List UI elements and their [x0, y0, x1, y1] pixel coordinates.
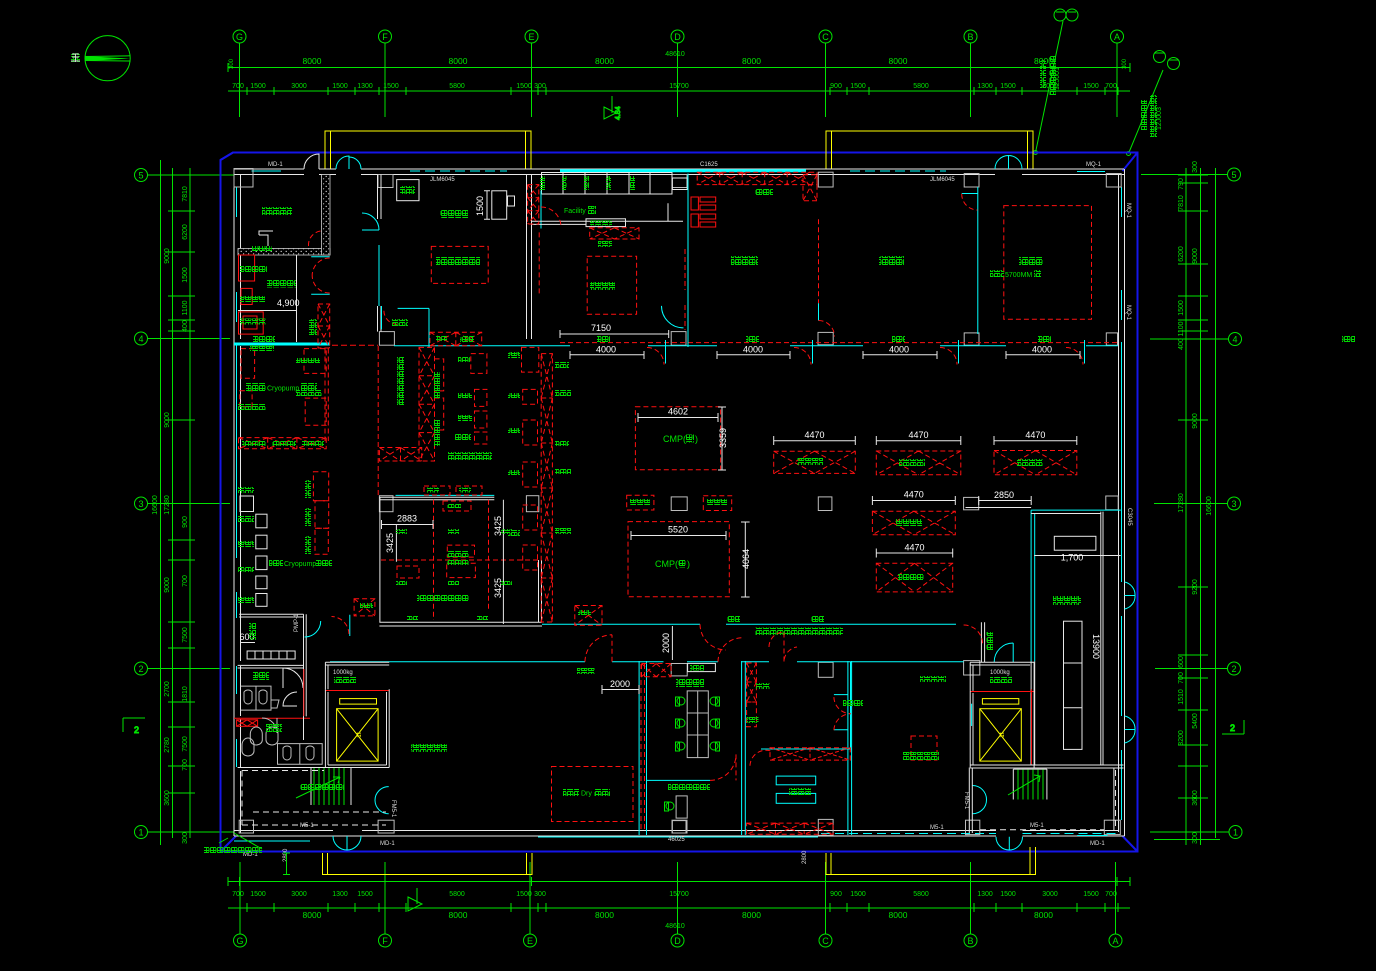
svg-text:300: 300: [1192, 161, 1199, 173]
svg-text:8000: 8000: [303, 56, 322, 66]
svg-text:4470: 4470: [1025, 430, 1045, 440]
svg-text:400: 400: [182, 320, 189, 332]
svg-text:1300: 1300: [357, 83, 373, 90]
svg-text:3600: 3600: [164, 790, 171, 806]
svg-text:CMP(: CMP(: [663, 434, 686, 444]
svg-text:3200: 3200: [1178, 730, 1185, 746]
svg-text:8000: 8000: [595, 910, 614, 920]
svg-text:1100: 1100: [182, 300, 189, 315]
svg-text:4470: 4470: [904, 542, 924, 552]
svg-text:9200: 9200: [1192, 579, 1199, 595]
svg-text:2700: 2700: [164, 681, 171, 697]
svg-text:1500: 1500: [383, 83, 399, 90]
svg-text:1,700: 1,700: [1061, 553, 1084, 563]
svg-text:700: 700: [232, 891, 244, 898]
svg-text:8000: 8000: [742, 56, 761, 66]
svg-text:5: 5: [138, 171, 143, 181]
svg-text:5520: 5520: [668, 525, 688, 535]
svg-text:E: E: [527, 936, 533, 946]
svg-text:1000kg: 1000kg: [333, 670, 353, 676]
svg-text:1500: 1500: [475, 196, 485, 216]
svg-text:46025: 46025: [668, 837, 685, 843]
svg-text:300: 300: [182, 832, 189, 844]
svg-text:8000: 8000: [1034, 910, 1053, 920]
svg-text:1: 1: [1233, 828, 1238, 838]
svg-text:16600: 16600: [1206, 496, 1213, 516]
svg-text:CMP(: CMP(: [655, 559, 678, 569]
svg-text:1500: 1500: [516, 83, 532, 90]
svg-text:1500: 1500: [850, 83, 866, 90]
svg-text:7500: 7500: [182, 736, 189, 752]
svg-text:4064: 4064: [741, 549, 751, 569]
svg-text:4000: 4000: [596, 345, 616, 355]
svg-text:48610: 48610: [665, 51, 685, 58]
svg-text:): ): [687, 559, 690, 569]
svg-text:E: E: [528, 32, 534, 42]
svg-text:MQ-1: MQ-1: [1086, 162, 1102, 168]
svg-text:PMP-1: PMP-1: [294, 613, 300, 632]
svg-text:Facility: Facility: [564, 208, 586, 215]
svg-text:300: 300: [1192, 832, 1199, 844]
svg-text:MQ-1: MQ-1: [1125, 305, 1131, 321]
svg-text:1500: 1500: [1083, 83, 1099, 90]
svg-text:1000kg: 1000kg: [990, 670, 1010, 676]
svg-text:1300: 1300: [977, 891, 993, 898]
svg-text:900: 900: [182, 516, 189, 528]
svg-text:1300: 1300: [977, 83, 993, 90]
svg-text:3359: 3359: [718, 428, 728, 448]
svg-text:8000: 8000: [889, 910, 908, 920]
svg-text:4000: 4000: [743, 345, 763, 355]
svg-text:C: C: [822, 32, 829, 42]
svg-text:3000: 3000: [1042, 891, 1058, 898]
svg-text:9000: 9000: [1192, 413, 1199, 429]
svg-text:13900: 13900: [1091, 634, 1101, 659]
svg-text:2: 2: [1230, 723, 1235, 733]
svg-text:1100: 1100: [1178, 321, 1185, 336]
svg-text:2: 2: [138, 664, 143, 674]
svg-text:9000: 9000: [164, 412, 171, 428]
svg-text:300: 300: [534, 891, 546, 898]
svg-text:8000: 8000: [303, 910, 322, 920]
svg-text:700: 700: [182, 759, 189, 771]
svg-text:9000: 9000: [164, 577, 171, 593]
svg-text:700: 700: [1105, 891, 1117, 898]
svg-text:4602: 4602: [668, 407, 688, 417]
svg-text:JLM6045: JLM6045: [430, 177, 455, 183]
svg-text:7150: 7150: [591, 323, 611, 333]
svg-text:2883: 2883: [397, 514, 417, 524]
svg-text:6200: 6200: [182, 224, 189, 240]
svg-text:1500: 1500: [332, 83, 348, 90]
svg-text:700: 700: [1178, 672, 1185, 684]
svg-text:M5-1: M5-1: [930, 825, 944, 831]
svg-text:4470: 4470: [804, 430, 824, 440]
svg-text:15700: 15700: [669, 891, 689, 898]
svg-text:700: 700: [1105, 83, 1117, 90]
svg-text:Cryopump: Cryopump: [284, 561, 316, 568]
svg-text:G: G: [236, 936, 243, 946]
svg-text:3: 3: [1231, 499, 1236, 509]
svg-text:1t: 1t: [356, 732, 363, 738]
svg-text:6200: 6200: [1178, 246, 1185, 262]
svg-text:900: 900: [830, 83, 842, 90]
svg-text:9000: 9000: [164, 248, 171, 264]
svg-text:D: D: [674, 936, 681, 946]
svg-text:1510: 1510: [1178, 689, 1185, 705]
svg-text:2800: 2800: [802, 850, 808, 864]
svg-text:FM5-1: FM5-1: [390, 800, 396, 818]
svg-text:B: B: [967, 936, 973, 946]
svg-text:3000: 3000: [291, 83, 307, 90]
svg-text:D: D: [674, 32, 681, 42]
svg-text:400: 400: [1178, 338, 1185, 350]
svg-text:M5-1: M5-1: [300, 823, 314, 829]
svg-text:12J001: 12J001: [1054, 67, 1061, 90]
svg-text:17280: 17280: [1178, 493, 1185, 513]
svg-text:A: A: [1112, 936, 1118, 946]
svg-text:2000: 2000: [661, 633, 671, 653]
svg-text:12J003: 12J003: [1156, 107, 1163, 130]
svg-text:7810: 7810: [1178, 195, 1185, 211]
svg-text:5800: 5800: [449, 83, 465, 90]
svg-text:8000: 8000: [449, 56, 468, 66]
svg-text:8000: 8000: [889, 56, 908, 66]
svg-text:1500: 1500: [250, 83, 266, 90]
svg-text:M5-1: M5-1: [1030, 823, 1044, 829]
svg-text:300: 300: [1122, 58, 1128, 69]
svg-text:7500: 7500: [182, 627, 189, 643]
svg-text:4000: 4000: [889, 345, 909, 355]
svg-text:8000: 8000: [742, 910, 761, 920]
svg-text:): ): [695, 434, 698, 444]
svg-text:1500: 1500: [357, 891, 373, 898]
svg-text:C3045: C3045: [1126, 508, 1132, 526]
svg-text:900: 900: [830, 891, 842, 898]
svg-text:8000: 8000: [595, 56, 614, 66]
svg-text:300: 300: [534, 83, 546, 90]
svg-text:1810: 1810: [182, 686, 189, 702]
svg-text:2780: 2780: [164, 737, 171, 753]
svg-text:A: A: [1114, 32, 1120, 42]
svg-text:Dry: Dry: [581, 791, 592, 798]
svg-text:16600: 16600: [152, 495, 159, 515]
svg-text:1500: 1500: [1000, 891, 1016, 898]
svg-text:700: 700: [182, 575, 189, 587]
svg-text:3: 3: [138, 499, 143, 509]
svg-text:1500: 1500: [1083, 891, 1099, 898]
svg-text:15700: 15700: [669, 83, 689, 90]
svg-text:2000: 2000: [610, 679, 630, 689]
svg-text:1500: 1500: [1178, 300, 1185, 316]
svg-text:5: 5: [1231, 170, 1236, 180]
svg-text:C: C: [822, 936, 829, 946]
svg-text:1300: 1300: [332, 891, 348, 898]
svg-text:4000: 4000: [1032, 345, 1052, 355]
svg-text:MD-1: MD-1: [268, 162, 283, 168]
svg-text:G: G: [236, 32, 243, 42]
svg-text:1500: 1500: [1000, 83, 1016, 90]
svg-text:3000: 3000: [291, 891, 307, 898]
svg-text:MQ-1: MQ-1: [1125, 203, 1131, 219]
svg-text:790: 790: [1178, 178, 1185, 190]
svg-text:48610: 48610: [665, 923, 685, 930]
svg-text:7810: 7810: [182, 186, 189, 202]
svg-text:700: 700: [232, 83, 244, 90]
svg-text:17280: 17280: [164, 495, 171, 515]
svg-text:Cryopump: Cryopump: [267, 386, 299, 393]
svg-text:8000: 8000: [449, 910, 468, 920]
svg-text:JLM6045: JLM6045: [930, 177, 955, 183]
svg-text:FM5-1: FM5-1: [963, 792, 969, 810]
svg-text:1500: 1500: [516, 891, 532, 898]
svg-text:F: F: [382, 936, 388, 946]
svg-text:4470: 4470: [908, 430, 928, 440]
svg-text:B: B: [967, 32, 973, 42]
svg-text:4470: 4470: [904, 490, 924, 500]
svg-text:4.84: 4.84: [615, 106, 622, 120]
svg-text:1500: 1500: [182, 267, 189, 283]
svg-text:F: F: [382, 32, 388, 42]
svg-text:3600: 3600: [1192, 790, 1199, 806]
svg-text:4,900: 4,900: [277, 298, 300, 308]
svg-text:2: 2: [1231, 664, 1236, 674]
svg-text:2: 2: [134, 725, 139, 735]
svg-text:1: 1: [138, 828, 143, 838]
svg-text:5700MM: 5700MM: [1005, 272, 1032, 279]
svg-text:MD-1: MD-1: [380, 841, 395, 847]
svg-text:300: 300: [229, 58, 235, 69]
svg-text:1500: 1500: [850, 891, 866, 898]
svg-text:600: 600: [1178, 656, 1185, 668]
svg-text:4: 4: [1232, 335, 1237, 345]
svg-text:MD-1: MD-1: [1090, 841, 1105, 847]
svg-text:5400: 5400: [1192, 713, 1199, 729]
svg-text:1t: 1t: [999, 732, 1006, 738]
svg-text:C1625: C1625: [700, 162, 718, 168]
svg-text:4: 4: [138, 334, 143, 344]
svg-text:5800: 5800: [449, 891, 465, 898]
svg-text:1500: 1500: [250, 891, 266, 898]
svg-text:5800: 5800: [913, 83, 929, 90]
svg-text:9000: 9000: [1192, 248, 1199, 264]
svg-text:3425: 3425: [385, 533, 395, 553]
svg-text:2850: 2850: [994, 490, 1014, 500]
svg-text:5800: 5800: [913, 891, 929, 898]
